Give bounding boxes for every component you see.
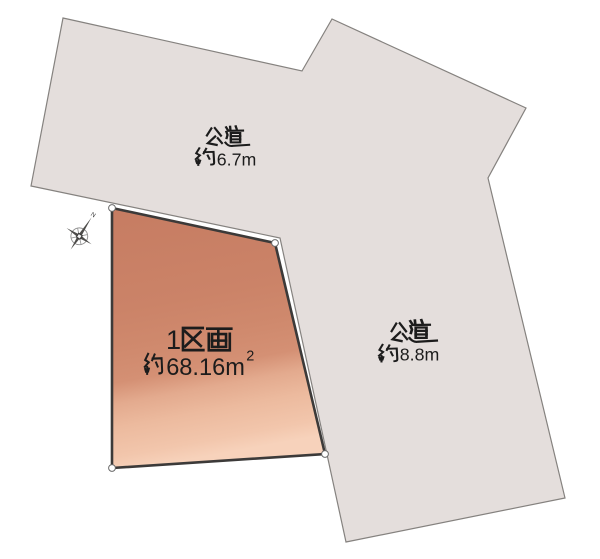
svg-text:2: 2 [246, 349, 254, 365]
svg-text:6.7m: 6.7m [217, 150, 257, 170]
svg-text:1: 1 [166, 324, 181, 355]
svg-text:8.8m: 8.8m [400, 344, 440, 364]
svg-text:68.16m: 68.16m [166, 355, 245, 381]
svg-text:N: N [89, 211, 97, 219]
